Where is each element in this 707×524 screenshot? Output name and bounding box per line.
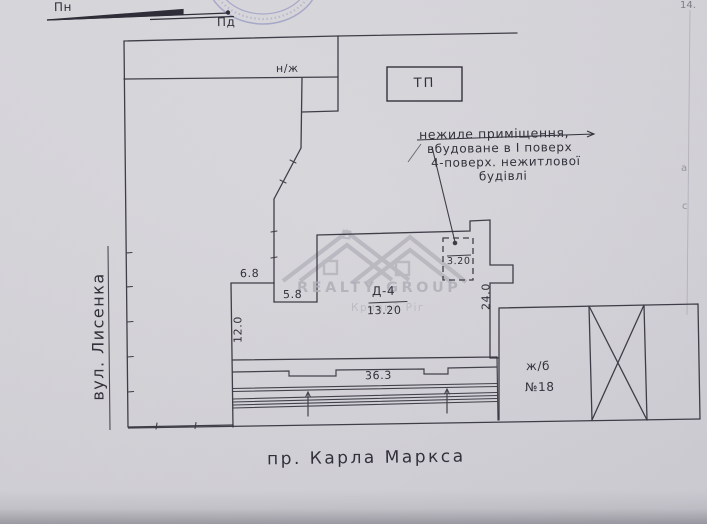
annotation-line-3: 4-поверх. нежитлової — [431, 154, 581, 170]
dim-courtyard-top: 6.8 — [240, 267, 259, 280]
top-strip-label: н/ж — [276, 62, 299, 75]
right-building-number: №18 — [525, 380, 555, 394]
dim-inset-room: 3.20 — [447, 256, 471, 267]
edge-mark-2: с — [682, 201, 688, 212]
street-name-left: вул. Лисенка — [89, 242, 108, 432]
watermark-logo-icon — [283, 231, 466, 283]
dim-building-right: 24.0 — [480, 272, 493, 322]
site-plan-page: REALTY GROUP Кривий Ріг Пн Пд 14. а с н/… — [0, 0, 707, 524]
street-left-underline — [108, 246, 110, 430]
street-edge-line — [128, 419, 700, 428]
compass-north-label: Пн — [54, 0, 72, 14]
edge-mark-1: а — [681, 163, 687, 174]
transformer-label: ТП — [387, 75, 462, 91]
dim-building-width: 13.20 — [367, 304, 402, 317]
dim-frontage: 36.3 — [365, 369, 392, 382]
page-edge-line — [687, 10, 690, 315]
page-number: 14. — [680, 0, 696, 11]
street-name-bottom: пр. Карла Маркса — [267, 447, 466, 470]
dim-courtyard-step: 5.8 — [283, 288, 302, 301]
frontage-strip — [233, 357, 498, 420]
right-building-type: ж/б — [526, 359, 550, 373]
dim-courtyard-left: 12.0 — [232, 305, 245, 355]
building-code: Д-4 — [372, 284, 395, 298]
compass-south-label: Пд — [217, 15, 236, 29]
annotation-line-4: будівлі — [479, 169, 528, 184]
right-building — [490, 304, 700, 420]
north-arrow-icon — [47, 10, 234, 21]
